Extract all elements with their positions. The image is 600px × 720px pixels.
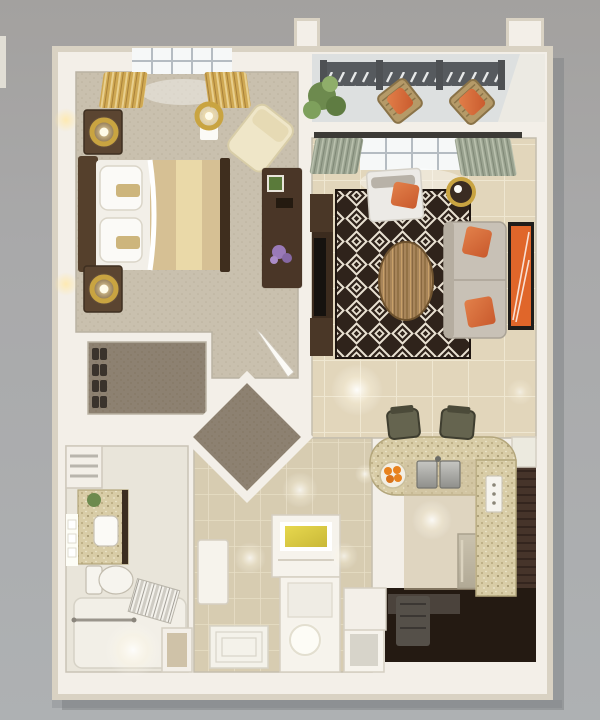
bed-runner	[176, 160, 202, 270]
sofa-orange-pillow	[464, 296, 496, 328]
floor-plan-render	[0, 0, 600, 720]
green-frame	[268, 176, 283, 191]
sofa-armrest	[444, 222, 454, 338]
sink-right	[440, 461, 460, 488]
small-box	[276, 198, 293, 208]
bedroom	[54, 48, 302, 378]
oval-coffee-table	[379, 242, 433, 320]
framed-orange-art	[508, 222, 534, 330]
curtain-rod	[314, 132, 522, 138]
daybed-orange-pillow	[390, 181, 420, 209]
headboard	[78, 156, 98, 272]
double-bed	[78, 156, 230, 272]
toilet-bowl	[99, 566, 133, 594]
bottom-shadow	[52, 700, 562, 708]
sink-left	[417, 461, 437, 488]
footboard	[220, 158, 230, 272]
bowl-of-oranges	[380, 462, 406, 488]
entry-alcove	[280, 577, 340, 672]
nightstand-bottom	[84, 266, 122, 312]
gold-curtain-left	[99, 72, 148, 108]
green-curtain-right	[454, 138, 517, 176]
tv	[314, 238, 326, 316]
green-curtain-left	[309, 138, 363, 174]
walk-in-closet	[88, 342, 206, 414]
linen-shelves	[66, 446, 102, 488]
shower-niche	[162, 628, 192, 672]
round-side-table	[446, 177, 476, 207]
bar-stool-right	[440, 405, 476, 440]
bar-stool-left	[386, 404, 420, 439]
cup	[454, 185, 462, 193]
accent-pillow	[116, 236, 140, 249]
daybed	[366, 168, 423, 222]
balcony-rail-top	[322, 62, 504, 72]
sofa	[444, 222, 506, 338]
wall-sconce-glow	[54, 108, 78, 132]
railing-post	[498, 60, 505, 90]
dresser	[262, 168, 302, 288]
vanity-edge	[122, 490, 128, 564]
wall-sconce-glow	[54, 272, 78, 296]
console-table	[272, 515, 340, 577]
accent-pillow	[116, 184, 140, 197]
balcony	[303, 54, 545, 126]
apartment-floor-plan-svg	[0, 0, 600, 720]
bathroom-door-leaf	[198, 540, 228, 604]
vanity-plant	[87, 493, 101, 507]
vanity-sink	[94, 516, 118, 546]
ribbed-door-mat	[210, 626, 268, 668]
alcove-niche	[288, 583, 332, 617]
niche-floor	[167, 633, 187, 667]
toilet	[86, 566, 133, 594]
glass-front-cabinet	[344, 628, 384, 672]
tv-console	[310, 194, 333, 356]
gold-glass-top	[285, 526, 327, 547]
cabinet-glass	[350, 634, 378, 666]
nightstand-top	[84, 110, 122, 154]
faucet	[435, 456, 441, 462]
globe-lamp	[290, 625, 320, 655]
step-wall	[344, 588, 386, 630]
railing-post	[436, 60, 443, 90]
railing-post	[376, 60, 383, 90]
left-edge-wall-stub	[0, 36, 6, 88]
